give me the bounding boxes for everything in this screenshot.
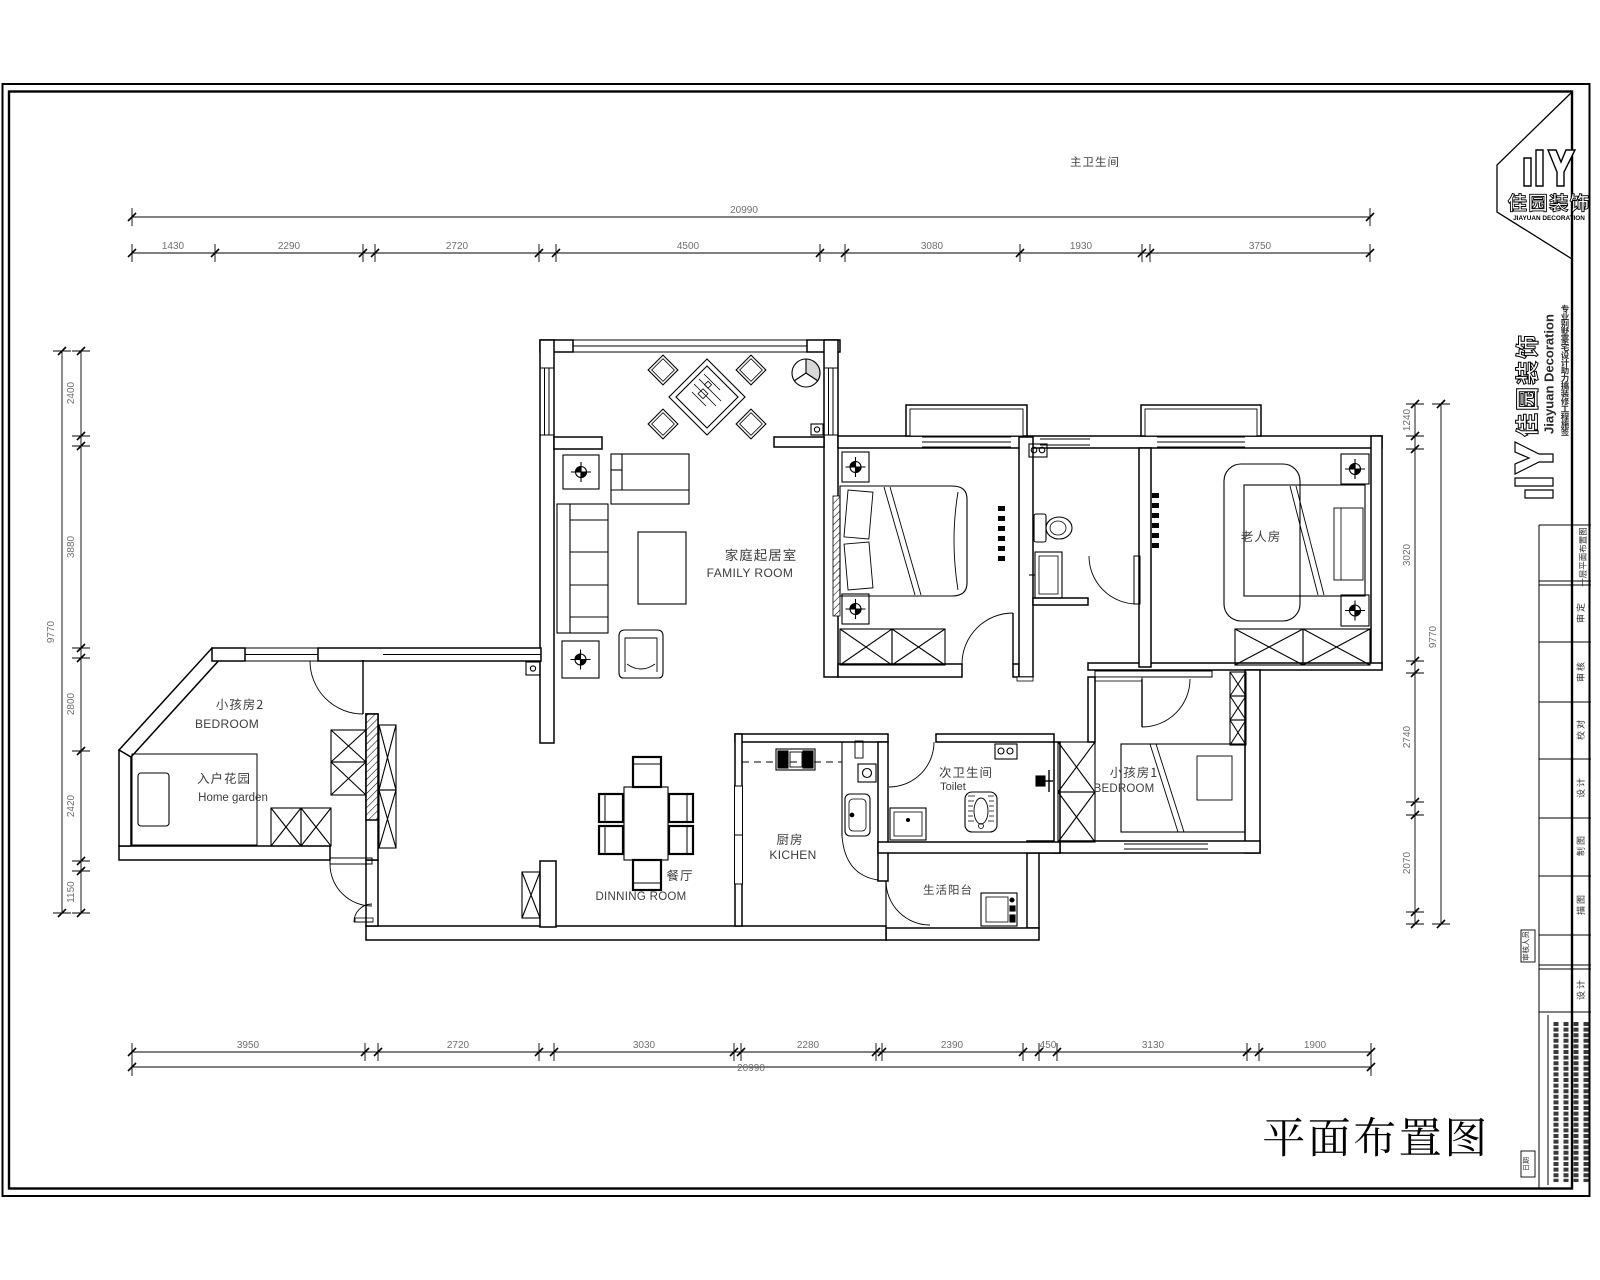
svg-text:Home garden: Home garden [198,792,268,804]
svg-text:Jiayuan Decoration: Jiayuan Decoration [1542,314,1557,434]
svg-text:9770: 9770 [1428,625,1439,648]
svg-text:3080: 3080 [921,241,944,252]
svg-text:2280: 2280 [797,1040,820,1051]
svg-text:1900: 1900 [1304,1040,1327,1051]
svg-text:3130: 3130 [1142,1040,1165,1051]
svg-text:2720: 2720 [447,1040,470,1051]
svg-text:3020: 3020 [1402,543,1413,566]
svg-text:1240: 1240 [1402,408,1413,431]
svg-text:DINNING ROOM: DINNING ROOM [595,891,686,903]
svg-text:BEDROOM: BEDROOM [1094,783,1155,795]
svg-text:450: 450 [1040,1040,1057,1051]
svg-text:4500: 4500 [677,241,700,252]
svg-text:1930: 1930 [1070,241,1093,252]
svg-text:3950: 3950 [237,1040,260,1051]
svg-text:2800: 2800 [66,692,77,715]
svg-text:9770: 9770 [46,620,57,643]
svg-text:FAMILY ROOM: FAMILY ROOM [707,566,794,580]
svg-text:20990: 20990 [737,1063,765,1074]
svg-text:2400: 2400 [66,381,77,404]
svg-text:Toilet: Toilet [940,781,966,793]
svg-text:20990: 20990 [730,205,758,216]
svg-text:3880: 3880 [66,535,77,558]
svg-text:1430: 1430 [162,241,185,252]
svg-text:KICHEN: KICHEN [769,848,816,862]
svg-text:3750: 3750 [1249,241,1272,252]
svg-text:1150: 1150 [66,881,77,903]
svg-text:JIAYUAN DECORATION: JIAYUAN DECORATION [1513,215,1585,222]
svg-text:2070: 2070 [1402,851,1413,874]
svg-text:2720: 2720 [446,241,469,252]
svg-text:BEDROOM: BEDROOM [195,717,259,731]
svg-text:2420: 2420 [66,794,77,817]
svg-text:2290: 2290 [278,241,301,252]
svg-text:2740: 2740 [1402,725,1413,748]
svg-text:3030: 3030 [633,1040,656,1051]
svg-text:2390: 2390 [941,1040,964,1051]
